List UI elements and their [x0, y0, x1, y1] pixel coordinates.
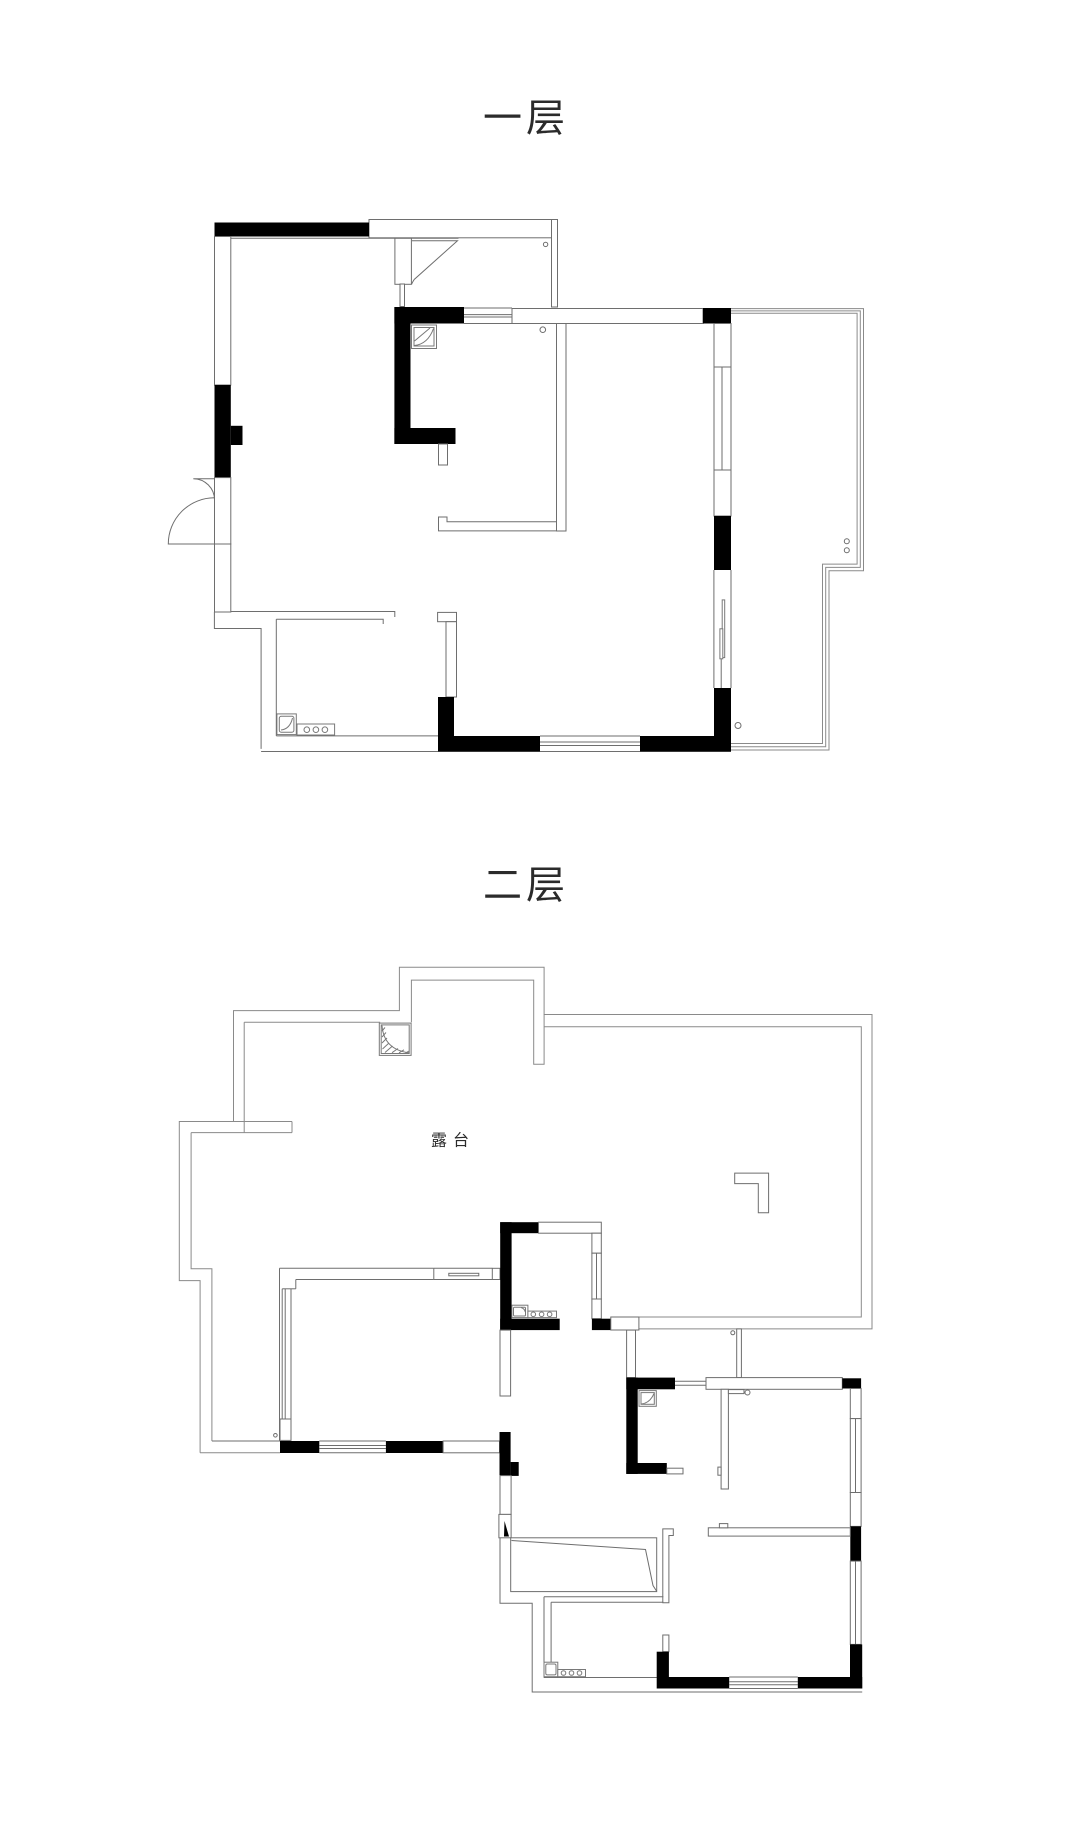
svg-text:二层: 二层: [483, 865, 569, 908]
svg-text:一层: 一层: [483, 98, 569, 141]
svg-text:露台: 露台: [431, 1132, 475, 1150]
